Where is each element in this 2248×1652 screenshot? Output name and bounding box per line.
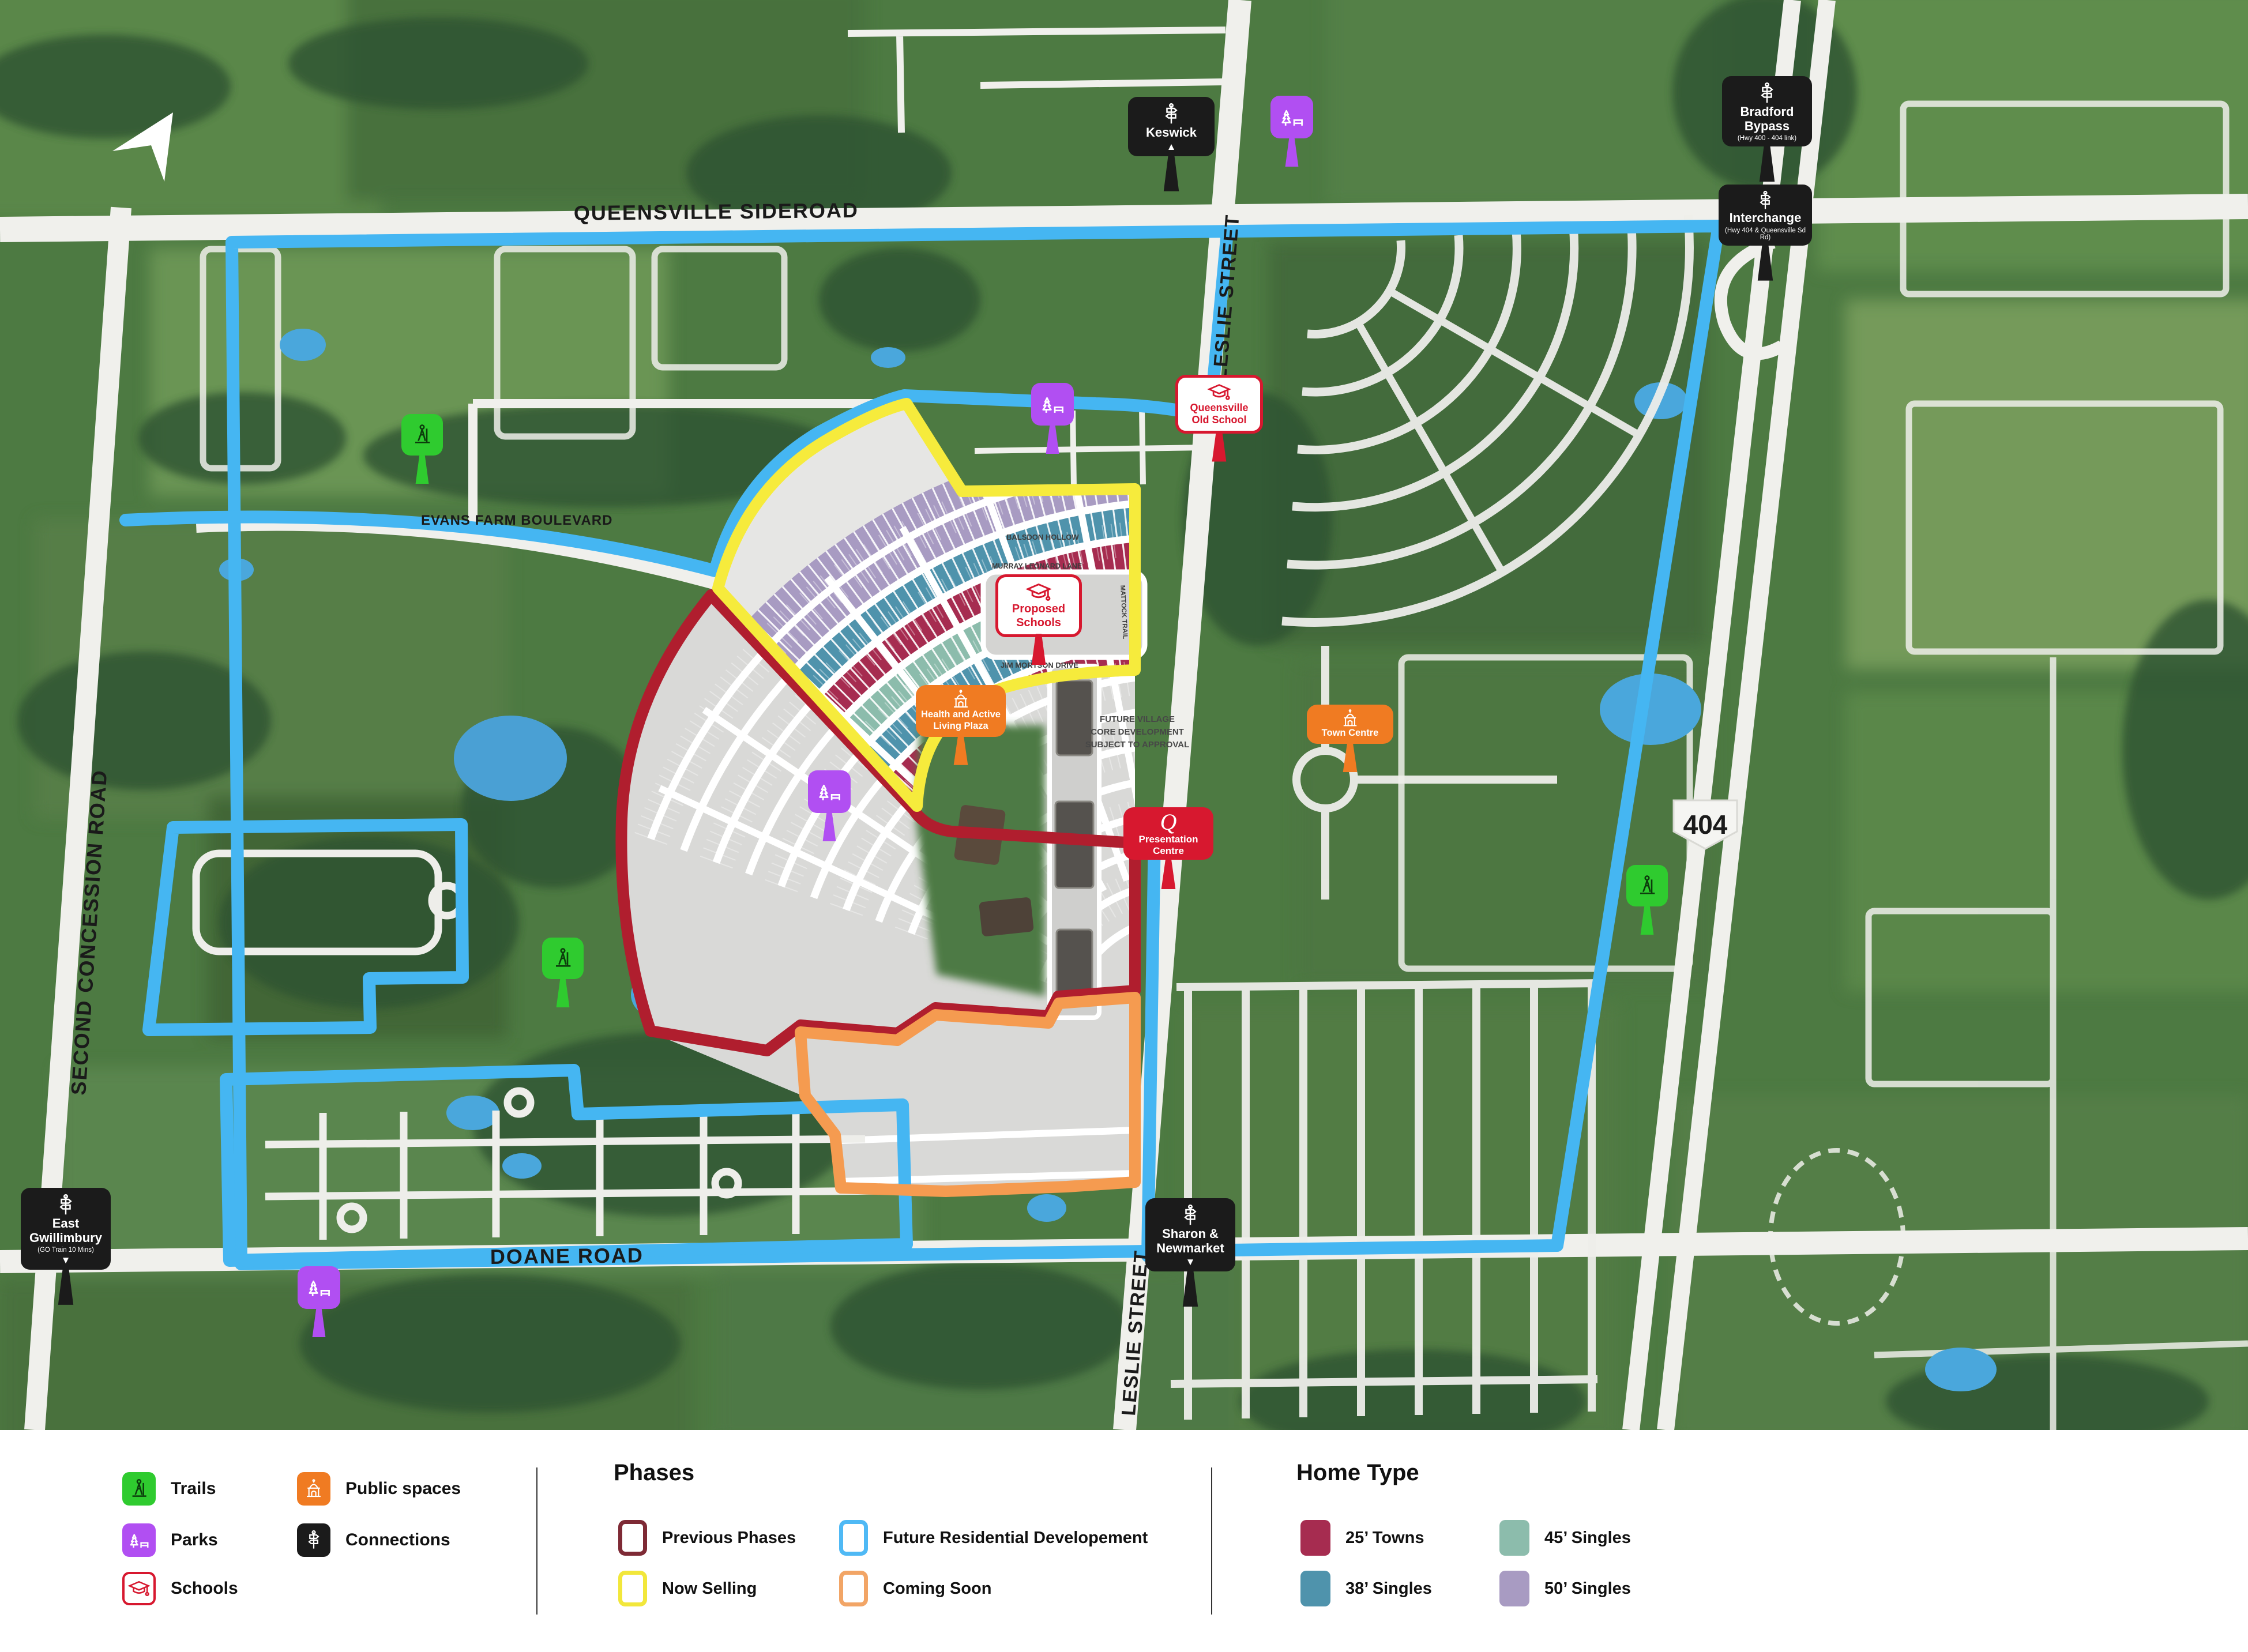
legend-label: Connections: [345, 1530, 450, 1550]
hiker-icon: [1636, 874, 1659, 897]
marker-label: Health and Active Living Plaza: [919, 709, 1002, 732]
hiker-icon: [551, 947, 574, 970]
map-canvas[interactable]: 404 QUEENSVILLE SIDEROAD LESLIE STREET L…: [0, 0, 2248, 1430]
marker-subtitle: (Hwy 404 & Queensville Sd Rd): [1723, 227, 1807, 241]
svg-text:CORE DEVELOPMENT: CORE DEVELOPMENT: [1091, 727, 1184, 737]
legend-item-45-singles: 45’ Singles: [1499, 1520, 1631, 1556]
legend-label: 50’ Singles: [1544, 1579, 1631, 1598]
signpost-icon: [54, 1194, 77, 1217]
marker-label: East Gwillimbury: [25, 1217, 106, 1245]
legend-divider-1: [536, 1467, 537, 1615]
legend-item-future-residential: Future Residential Developement: [839, 1520, 1148, 1556]
marker-label: Queensville Old School: [1182, 402, 1257, 426]
legend-label: Now Selling: [662, 1579, 757, 1598]
future-core-note: FUTURE VILLAGE CORE DEVELOPMENT SUBJECT …: [1085, 714, 1190, 750]
signpost-icon: [297, 1523, 330, 1557]
legend-item-connections: Connections: [297, 1523, 450, 1557]
legend-item-parks: Parks: [122, 1523, 218, 1557]
marker-label: Proposed Schools: [1002, 603, 1076, 630]
marker-label: Presentation Centre: [1127, 834, 1210, 856]
marker-label: Interchange: [1723, 211, 1807, 225]
marker-label: Bradford Bypass: [1727, 105, 1807, 133]
marker-subtitle: (Hwy 400 - 404 link): [1727, 135, 1807, 142]
doane-road-label: DOANE ROAD: [490, 1243, 644, 1269]
legend-item-25-towns: 25’ Towns: [1300, 1520, 1424, 1556]
legend-label: 38’ Singles: [1345, 1579, 1432, 1598]
town-hall-icon: [950, 690, 972, 709]
legend-label: Coming Soon: [883, 1579, 991, 1598]
coming-soon-swatch: [839, 1571, 868, 1606]
tree-bench-icon: [306, 1275, 332, 1300]
tree-bench-icon: [816, 780, 843, 804]
marker-trail-2[interactable]: [542, 938, 584, 979]
direction-down-icon: ▼: [25, 1255, 106, 1265]
marker-park-4[interactable]: [298, 1266, 340, 1309]
murray-leonard-label: MURRAY LEONARD LANE: [992, 562, 1082, 570]
marker-proposed-schools[interactable]: Proposed Schools: [995, 574, 1082, 637]
town-hall-icon: [1340, 709, 1360, 728]
legend-label: Trails: [171, 1479, 216, 1499]
marker-bradford-bypass[interactable]: Bradford Bypass (Hwy 400 - 404 link): [1722, 76, 1812, 146]
signpost-icon: [1160, 103, 1183, 126]
direction-up-icon: ▲: [1133, 142, 1210, 152]
legend-label: Future Residential Developement: [883, 1529, 1148, 1548]
phases-title: Phases: [614, 1460, 694, 1486]
marker-park-1[interactable]: [1270, 96, 1313, 138]
svg-text:SUBJECT TO APPROVAL: SUBJECT TO APPROVAL: [1085, 740, 1190, 750]
legend-label: Schools: [171, 1579, 238, 1598]
legend-item-now-selling: Now Selling: [618, 1571, 757, 1606]
tree-bench-icon: [122, 1523, 156, 1557]
legend-item-50-singles: 50’ Singles: [1499, 1571, 1631, 1606]
marker-sharon-newmarket[interactable]: Sharon & Newmarket ▼: [1145, 1198, 1235, 1271]
legend-item-coming-soon: Coming Soon: [839, 1571, 991, 1606]
marker-keswick[interactable]: Keswick ▲: [1128, 97, 1215, 156]
legend-label: Parks: [171, 1530, 218, 1550]
marker-town-centre[interactable]: Town Centre: [1307, 705, 1393, 744]
tree-bench-icon: [1279, 105, 1305, 129]
satellite-map: 404 QUEENSVILLE SIDEROAD LESLIE STREET L…: [0, 0, 2248, 1430]
legend-label: 45’ Singles: [1544, 1529, 1631, 1548]
marker-label: Keswick: [1133, 126, 1210, 140]
home-type-title: Home Type: [1296, 1460, 1419, 1486]
legend-label: Public spaces: [345, 1479, 461, 1499]
legend-bar: Trails Parks Schools: [0, 1430, 2248, 1652]
singles-50-swatch: [1499, 1571, 1529, 1606]
q-logo-small: Q: [1127, 811, 1210, 834]
hwy-404-label: 404: [1683, 810, 1728, 840]
masterplan-map-page: 404 QUEENSVILLE SIDEROAD LESLIE STREET L…: [0, 0, 2248, 1652]
future-residential-swatch: [839, 1520, 868, 1556]
legend-label: Previous Phases: [662, 1529, 796, 1548]
legend-label: 25’ Towns: [1345, 1529, 1424, 1548]
tree-bench-icon: [1039, 392, 1066, 416]
legend-item-public-spaces: Public spaces: [297, 1472, 461, 1506]
building: [979, 897, 1034, 936]
grad-cap-icon: [1207, 382, 1231, 402]
marker-park-2[interactable]: [1031, 383, 1074, 426]
marker-trail-1[interactable]: [401, 414, 443, 456]
previous-phases-swatch: [618, 1520, 647, 1556]
marker-east-gwillimbury[interactable]: East Gwillimbury (GO Train 10 Mins) ▼: [21, 1188, 111, 1270]
legend-divider-2: [1211, 1467, 1212, 1615]
towns-25-swatch: [1300, 1520, 1330, 1556]
marker-park-3[interactable]: [808, 770, 851, 813]
marker-trail-3[interactable]: [1626, 865, 1668, 906]
direction-down-icon: ▼: [1150, 1257, 1231, 1267]
signpost-icon: [1755, 190, 1776, 211]
marker-presentation-centre[interactable]: Q Presentation Centre: [1123, 807, 1213, 860]
balsdon-hollow-label: BALSDON HOLLOW: [1006, 533, 1079, 541]
marker-label: Town Centre: [1310, 728, 1390, 739]
grad-cap-icon: [122, 1572, 156, 1605]
marker-interchange[interactable]: Interchange (Hwy 404 & Queensville Sd Rd…: [1719, 185, 1812, 246]
legend-item-previous-phases: Previous Phases: [618, 1520, 796, 1556]
singles-45-swatch: [1499, 1520, 1529, 1556]
signpost-icon: [1179, 1204, 1202, 1227]
svg-text:FUTURE VILLAGE: FUTURE VILLAGE: [1100, 714, 1175, 724]
marker-subtitle: (GO Train 10 Mins): [25, 1247, 106, 1254]
hiker-icon: [122, 1472, 156, 1506]
now-selling-swatch: [618, 1571, 647, 1606]
grad-cap-icon: [1025, 582, 1052, 603]
legend-item-trails: Trails: [122, 1472, 216, 1506]
marker-queensville-old-school[interactable]: Queensville Old School: [1175, 375, 1263, 434]
legend-item-schools: Schools: [122, 1572, 238, 1605]
marker-health-plaza[interactable]: Health and Active Living Plaza: [916, 685, 1006, 737]
signpost-icon: [1755, 82, 1779, 105]
marker-label: Sharon & Newmarket: [1150, 1227, 1231, 1255]
queensville-sideroad-label: QUEENSVILLE SIDEROAD: [574, 198, 859, 225]
hiker-icon: [411, 423, 434, 446]
singles-38-swatch: [1300, 1571, 1330, 1606]
town-hall-icon: [297, 1472, 330, 1506]
legend-item-38-singles: 38’ Singles: [1300, 1571, 1432, 1606]
evans-farm-label: EVANS FARM BOULEVARD: [421, 513, 612, 528]
